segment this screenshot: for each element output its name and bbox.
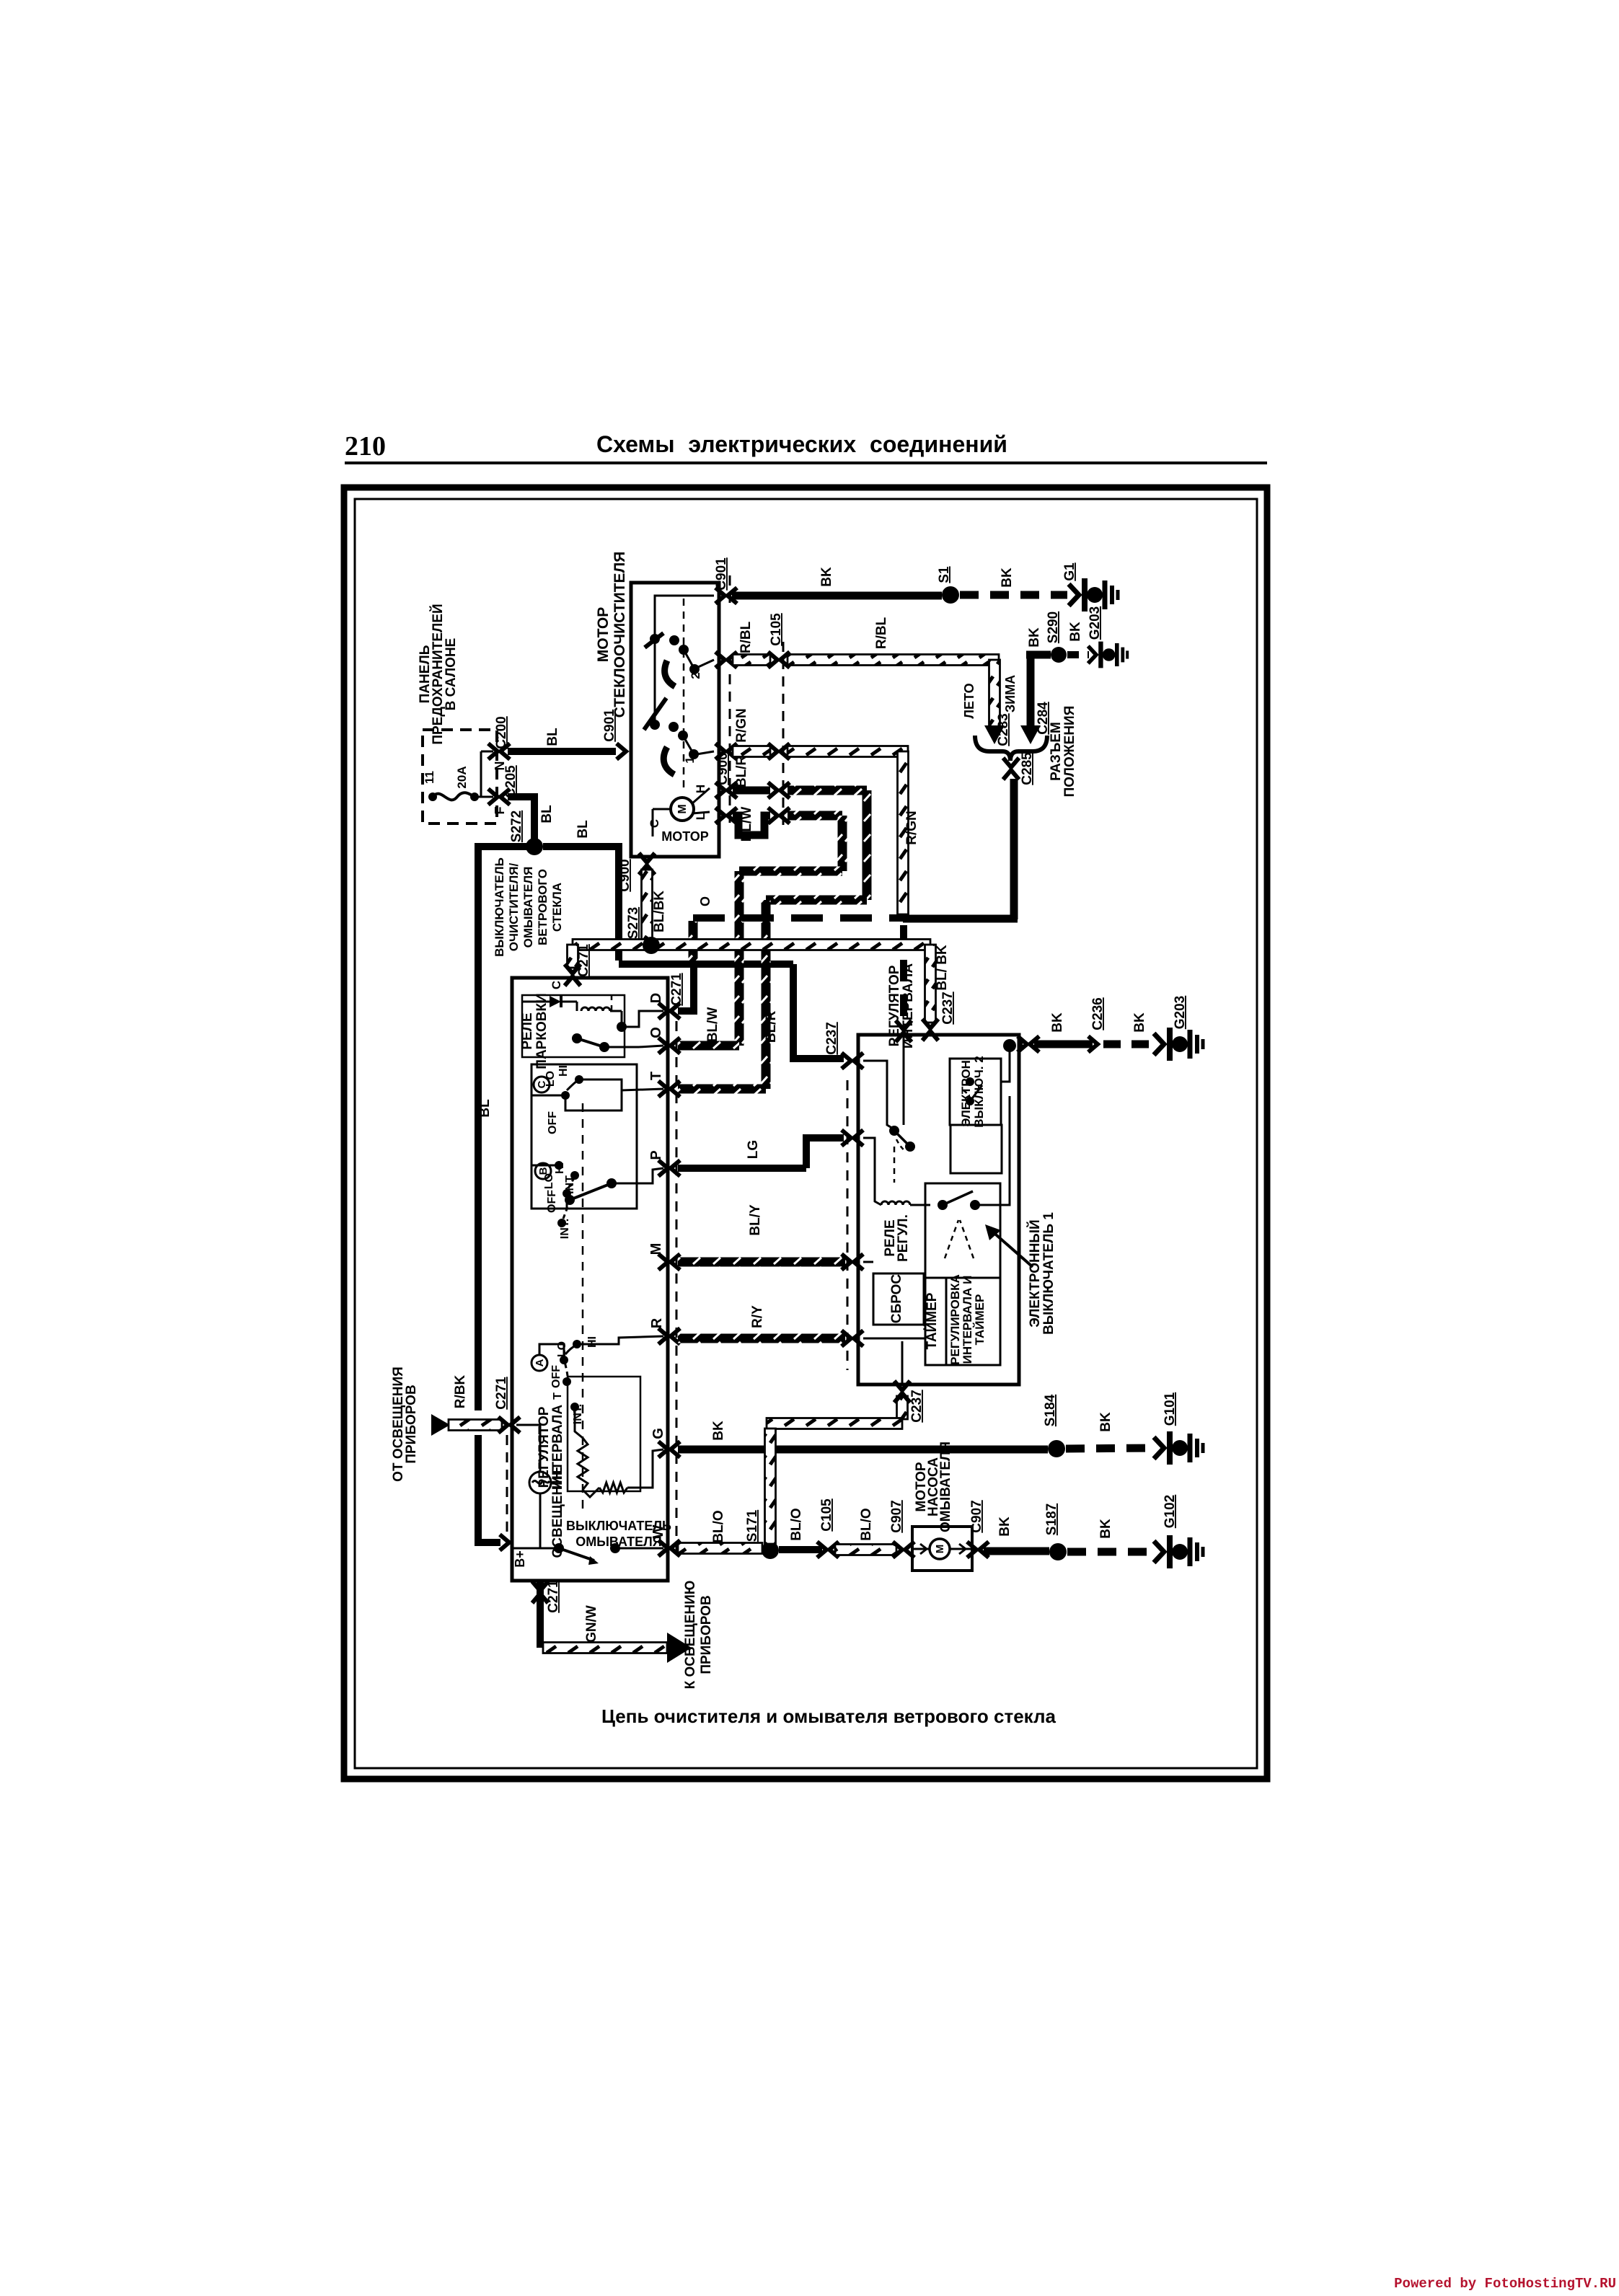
svg-text:BK: BK [1098,1519,1113,1539]
svg-text:D: D [648,993,664,1003]
svg-text:LO: LO [544,1071,557,1087]
svg-text:G102: G102 [1163,1495,1178,1528]
svg-text:К ОСВЕЩЕНИЮ: К ОСВЕЩЕНИЮ [683,1581,698,1690]
svg-text:BL/O: BL/O [789,1508,804,1540]
svg-text:C907: C907 [969,1500,984,1532]
svg-text:G101: G101 [1163,1392,1178,1426]
svg-text:BL/R: BL/R [734,756,749,788]
svg-text:ОЧИСТИТЕЛЯ/: ОЧИСТИТЕЛЯ/ [507,863,521,952]
svg-text:OFF: OFF [547,1111,559,1134]
svg-text:BK: BK [1068,622,1083,642]
svg-text:2: 2 [689,672,702,679]
svg-text:B+: B+ [513,1550,527,1568]
svg-text:T: T [552,1392,564,1400]
svg-text:ПРИБОРОВ: ПРИБОРОВ [699,1595,714,1674]
svg-text:T: T [648,1072,664,1080]
svg-text:BL/Y: BL/Y [748,1204,763,1236]
svg-text:СТЕКЛООЧИСТИТЕЛЯ: СТЕКЛООЧИСТИТЕЛЯ [612,552,628,718]
svg-text:R/GN: R/GN [904,811,919,845]
svg-text:СТЕКЛА: СТЕКЛА [550,883,564,932]
svg-text:М: М [676,804,689,813]
svg-text:РЕЛЕ: РЕЛЕ [520,1012,535,1049]
svg-text:C271: C271 [576,944,591,977]
svg-text:BK: BK [1050,1012,1065,1033]
svg-text:R/BL: R/BL [874,617,889,649]
svg-text:ОМЫВАТЕЛЯ: ОМЫВАТЕЛЯ [575,1535,661,1549]
svg-text:BL/BK: BL/BK [652,891,667,932]
svg-text:МОТОР: МОТОР [661,829,709,844]
svg-text:BL/W: BL/W [739,807,754,842]
svg-text:L: L [694,813,707,820]
svg-text:C900: C900 [715,752,731,785]
svg-text:M: M [648,1243,664,1255]
svg-text:C901: C901 [714,557,729,591]
svg-text:М: М [934,1545,946,1554]
svg-text:OFF: OFF [550,1365,563,1388]
svg-text:S273: S273 [626,907,641,939]
svg-text:S171: S171 [745,1509,760,1542]
svg-text:МОТОР: МОТОР [595,607,612,662]
svg-text:ПОЛОЖЕНИЯ: ПОЛОЖЕНИЯ [1062,706,1077,798]
svg-text:O: O [648,1027,664,1038]
svg-text:OFF: OFF [546,1190,558,1213]
svg-text:H: H [694,785,707,793]
svg-text:РАЗЪЕМ: РАЗЪЕМ [1049,722,1064,781]
svg-text:1: 1 [683,756,697,763]
svg-text:ВЫКЛЮЧАТЕЛЬ 1: ВЫКЛЮЧАТЕЛЬ 1 [1041,1212,1056,1335]
svg-text:R: R [649,1317,665,1328]
svg-text:C237: C237 [940,992,956,1024]
svg-text:BK: BK [711,1421,726,1441]
svg-text:ВЫКЛЮЧАТЕЛЬ: ВЫКЛЮЧАТЕЛЬ [493,857,506,957]
svg-text:S187: S187 [1044,1504,1059,1535]
svg-text:C271: C271 [494,1377,509,1410]
svg-text:C271: C271 [669,973,684,1006]
svg-text:A: A [534,1359,546,1366]
svg-text:ПАРКОВКИ: ПАРКОВКИ [534,993,550,1069]
svg-text:R/BL: R/BL [738,621,754,653]
svg-text:BK: BK [1132,1012,1147,1033]
svg-text:S184: S184 [1043,1394,1058,1426]
svg-text:ОМЫВАТЕЛЯ: ОМЫВАТЕЛЯ [521,867,535,948]
svg-text:R/Y: R/Y [750,1305,765,1328]
svg-text:R/BK: R/BK [453,1375,468,1409]
svg-text:C105: C105 [769,613,784,646]
svg-text:C200: C200 [494,716,509,749]
svg-text:ВЫКЛЮЧ. 2: ВЫКЛЮЧ. 2 [972,1056,986,1127]
svg-text:BL/R: BL/R [764,1011,779,1043]
svg-text:В САЛОНЕ: В САЛОНЕ [444,638,459,711]
svg-text:C: C [550,981,563,989]
svg-text:ЭЛЕКТРОННЫЙ: ЭЛЕКТРОННЫЙ [1027,1219,1043,1327]
svg-text:BK: BK [1027,627,1042,648]
svg-text:СБРОС: СБРОС [889,1274,904,1324]
svg-text:BK: BK [997,1516,1013,1537]
svg-text:Цепь очистителя и омывателя ве: Цепь очистителя и омывателя ветрового ст… [601,1705,1056,1727]
svg-text:Схемы электрических соединений: Схемы электрических соединений [596,431,1007,457]
svg-text:210: 210 [345,431,386,462]
svg-text:C285: C285 [1020,752,1035,785]
svg-text:ВЫКЛЮЧАТЕЛЬ: ВЫКЛЮЧАТЕЛЬ [566,1519,671,1533]
svg-text:ТАЙМЕР: ТАЙМЕР [924,1292,940,1349]
svg-text:C283: C283 [996,713,1011,746]
svg-text:HI: HI [586,1336,599,1348]
svg-text:BK: BK [1098,1412,1113,1432]
svg-text:G: G [650,1428,666,1439]
svg-text:C900: C900 [617,859,632,891]
svg-text:ТАЙМЕР: ТАЙМЕР [973,1294,987,1346]
svg-text:S290: S290 [1046,611,1061,643]
svg-text:C105: C105 [819,1498,834,1532]
svg-text:C: C [648,819,661,828]
svg-text:G203: G203 [1173,996,1188,1029]
svg-text:S1: S1 [937,566,952,583]
svg-text:R/GN: R/GN [734,708,749,743]
svg-text:BL: BL [539,805,555,824]
svg-text:11: 11 [423,771,436,784]
svg-text:ПРИБОРОВ: ПРИБОРОВ [404,1385,419,1463]
svg-text:BL: BL [575,820,591,839]
svg-text:C237: C237 [824,1022,839,1054]
svg-text:G203: G203 [1088,606,1103,640]
svg-text:G1: G1 [1062,562,1077,581]
svg-text:BL/W: BL/W [705,1007,720,1043]
svg-text:Powered by FotoHostingTV.RU: Powered by FotoHostingTV.RU [1394,2276,1616,2292]
svg-text:C236: C236 [1090,997,1106,1030]
svg-text:BK: BK [1000,568,1015,588]
svg-text:C271: C271 [546,1580,561,1613]
svg-text:BL/O: BL/O [711,1510,726,1542]
svg-text:ОМЫВАТЕЛЯ: ОМЫВАТЕЛЯ [938,1441,953,1532]
svg-text:S272: S272 [509,811,524,842]
svg-text:LO: LO [543,1173,555,1189]
svg-text:C907: C907 [889,1500,904,1532]
svg-text:BL: BL [477,1099,493,1118]
svg-text:C237: C237 [909,1390,925,1422]
svg-text:РЕГУЛ.: РЕГУЛ. [896,1214,911,1262]
svg-text:ВЕТРОВОГО: ВЕТРОВОГО [536,869,550,945]
svg-text:GN/W: GN/W [584,1605,599,1643]
svg-text:BL/ BK: BL/ BK [935,945,950,991]
svg-text:C205: C205 [503,765,519,798]
svg-text:O: O [698,896,713,906]
svg-text:20А: 20А [455,766,469,788]
svg-text:LG: LG [746,1140,761,1159]
svg-text:BK: BK [819,567,834,587]
svg-text:BL: BL [545,728,560,746]
svg-text:HI: HI [557,1065,570,1077]
svg-text:P: P [648,1150,664,1160]
svg-text:F: F [493,807,507,815]
svg-text:BL/O: BL/O [859,1508,874,1540]
svg-text:ЛЕТО: ЛЕТО [962,683,976,718]
svg-text:ЗИМА: ЗИМА [1003,675,1018,712]
